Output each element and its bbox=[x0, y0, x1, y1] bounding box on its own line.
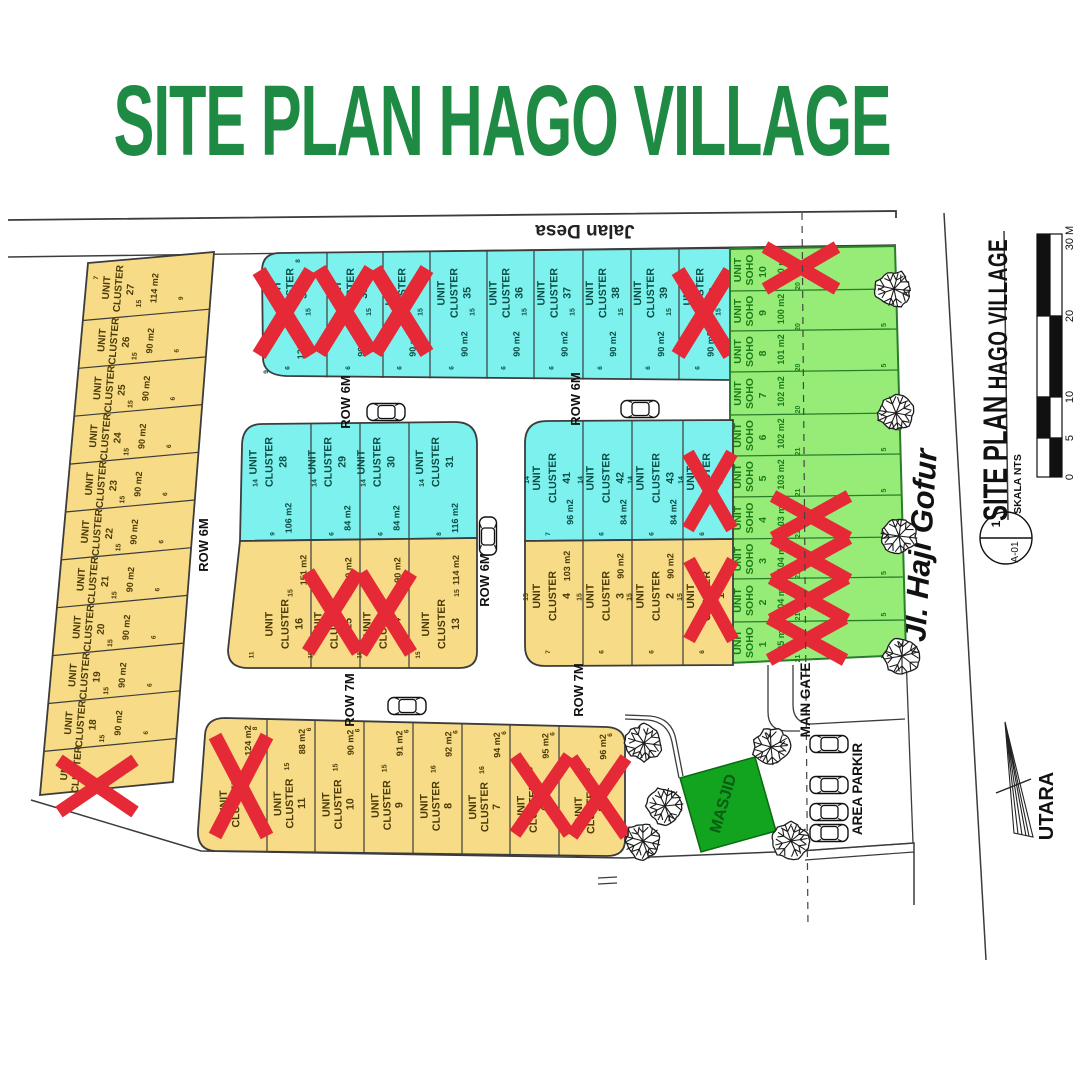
svg-text:15: 15 bbox=[136, 299, 144, 307]
svg-text:UNIT: UNIT bbox=[531, 583, 543, 608]
svg-text:UNIT: UNIT bbox=[67, 663, 80, 687]
svg-text:8: 8 bbox=[757, 350, 769, 356]
svg-text:15: 15 bbox=[366, 308, 373, 316]
svg-text:13: 13 bbox=[450, 618, 462, 630]
svg-text:UNIT: UNIT bbox=[80, 520, 93, 544]
svg-text:10: 10 bbox=[1064, 391, 1076, 403]
svg-text:20: 20 bbox=[96, 623, 108, 635]
svg-text:84 m2: 84 m2 bbox=[342, 505, 352, 531]
svg-text:CLUSTER: CLUSTER bbox=[547, 453, 559, 503]
svg-text:5: 5 bbox=[881, 363, 888, 367]
svg-text:15: 15 bbox=[99, 734, 107, 742]
svg-text:UNIT: UNIT bbox=[92, 376, 105, 400]
svg-text:15: 15 bbox=[131, 352, 139, 360]
svg-text:6: 6 bbox=[549, 732, 556, 736]
svg-text:6: 6 bbox=[500, 366, 507, 370]
svg-text:90 m2: 90 m2 bbox=[656, 331, 666, 357]
svg-text:6: 6 bbox=[345, 366, 352, 370]
svg-text:UNIT: UNIT bbox=[84, 472, 97, 496]
svg-text:UNIT: UNIT bbox=[685, 583, 697, 608]
svg-text:14: 14 bbox=[252, 479, 259, 487]
svg-text:UNIT: UNIT bbox=[584, 280, 596, 305]
svg-text:103 m2: 103 m2 bbox=[562, 551, 572, 582]
svg-text:100 m2: 100 m2 bbox=[776, 294, 786, 325]
svg-text:SOHO: SOHO bbox=[744, 420, 756, 451]
svg-text:84 m2: 84 m2 bbox=[391, 505, 401, 531]
svg-text:CLUSTER: CLUSTER bbox=[500, 268, 512, 318]
svg-text:23: 23 bbox=[108, 479, 120, 491]
svg-text:22: 22 bbox=[104, 527, 116, 539]
svg-text:88 m2: 88 m2 bbox=[297, 729, 307, 755]
svg-text:90 m2: 90 m2 bbox=[345, 730, 355, 756]
svg-text:39: 39 bbox=[658, 287, 670, 299]
svg-text:SOHO: SOHO bbox=[744, 544, 756, 575]
svg-text:6: 6 bbox=[645, 366, 652, 370]
svg-text:UNIT: UNIT bbox=[63, 711, 76, 735]
svg-text:UNIT: UNIT bbox=[732, 298, 744, 323]
svg-text:UNIT: UNIT bbox=[632, 280, 644, 305]
svg-text:15: 15 bbox=[381, 764, 388, 772]
svg-text:Jalan Desa: Jalan Desa bbox=[535, 220, 635, 241]
svg-text:UNIT: UNIT bbox=[732, 339, 744, 364]
svg-text:90 m2: 90 m2 bbox=[459, 331, 469, 357]
svg-text:15: 15 bbox=[287, 589, 294, 597]
svg-text:21: 21 bbox=[795, 613, 802, 621]
svg-text:15: 15 bbox=[123, 448, 131, 456]
svg-text:9: 9 bbox=[263, 370, 270, 374]
svg-text:7: 7 bbox=[757, 392, 769, 398]
svg-text:15: 15 bbox=[119, 495, 127, 503]
svg-text:A-01: A-01 bbox=[1010, 541, 1021, 563]
svg-text:CLUSTER: CLUSTER bbox=[448, 268, 460, 318]
svg-text:7: 7 bbox=[545, 532, 552, 536]
svg-text:90 m2: 90 m2 bbox=[608, 331, 618, 357]
svg-text:6: 6 bbox=[306, 727, 313, 731]
svg-text:106 m2: 106 m2 bbox=[283, 503, 293, 534]
svg-text:90 m2: 90 m2 bbox=[120, 614, 132, 640]
svg-text:UNIT: UNIT bbox=[369, 793, 381, 818]
svg-text:6: 6 bbox=[403, 729, 410, 733]
svg-text:15: 15 bbox=[127, 400, 135, 408]
svg-text:CLUSTER: CLUSTER bbox=[547, 571, 559, 621]
svg-text:3: 3 bbox=[614, 593, 626, 599]
svg-text:90 m2: 90 m2 bbox=[144, 328, 156, 354]
svg-text:6: 6 bbox=[648, 650, 655, 654]
svg-text:5: 5 bbox=[881, 488, 888, 492]
svg-text:21: 21 bbox=[795, 489, 802, 497]
svg-text:6: 6 bbox=[598, 650, 605, 654]
svg-text:6: 6 bbox=[501, 731, 508, 735]
svg-text:CLUSTER: CLUSTER bbox=[263, 437, 275, 487]
svg-text:15: 15 bbox=[305, 308, 312, 316]
svg-text:CLUSTER: CLUSTER bbox=[430, 781, 443, 832]
svg-text:38: 38 bbox=[610, 287, 622, 299]
svg-text:15: 15 bbox=[523, 593, 530, 601]
svg-text:UNIT: UNIT bbox=[584, 583, 596, 608]
svg-text:14: 14 bbox=[360, 479, 367, 487]
svg-text:6: 6 bbox=[757, 434, 769, 440]
svg-text:CLUSTER: CLUSTER bbox=[650, 571, 662, 621]
svg-text:UNIT: UNIT bbox=[467, 794, 479, 819]
svg-text:6: 6 bbox=[699, 532, 706, 536]
svg-text:SOHO: SOHO bbox=[744, 627, 756, 658]
svg-text:6: 6 bbox=[548, 366, 555, 370]
svg-text:6: 6 bbox=[597, 366, 604, 370]
svg-text:UNIT: UNIT bbox=[71, 615, 84, 639]
svg-text:43: 43 bbox=[664, 472, 676, 484]
svg-text:15: 15 bbox=[417, 308, 424, 316]
svg-text:AREA PARKIR: AREA PARKIR bbox=[850, 743, 865, 836]
svg-text:6: 6 bbox=[396, 366, 403, 370]
svg-text:CLUSTER: CLUSTER bbox=[650, 453, 662, 503]
svg-text:CLUSTER: CLUSTER bbox=[322, 437, 334, 487]
svg-text:SITE PLAN HAGO VILLAGE: SITE PLAN HAGO VILLAGE bbox=[114, 64, 891, 176]
svg-text:116 m2: 116 m2 bbox=[450, 503, 460, 533]
svg-text:7: 7 bbox=[545, 650, 552, 654]
svg-text:84 m2: 84 m2 bbox=[618, 499, 628, 525]
svg-text:20: 20 bbox=[795, 406, 802, 414]
svg-text:UNIT: UNIT bbox=[732, 257, 744, 282]
svg-text:14: 14 bbox=[577, 476, 584, 484]
svg-text:CLUSTER: CLUSTER bbox=[284, 778, 297, 829]
svg-text:UNIT: UNIT bbox=[306, 449, 318, 474]
svg-text:15: 15 bbox=[284, 762, 291, 770]
svg-text:CLUSTER: CLUSTER bbox=[600, 571, 612, 621]
svg-text:SOHO: SOHO bbox=[744, 585, 756, 616]
svg-text:SOHO: SOHO bbox=[744, 336, 756, 367]
svg-text:5: 5 bbox=[881, 571, 888, 575]
svg-text:14: 14 bbox=[524, 476, 531, 484]
svg-text:6: 6 bbox=[354, 728, 361, 732]
svg-text:8: 8 bbox=[252, 726, 259, 730]
svg-text:UNIT: UNIT bbox=[101, 276, 114, 300]
svg-text:11: 11 bbox=[296, 797, 308, 809]
svg-text:15: 15 bbox=[111, 591, 119, 599]
svg-text:5: 5 bbox=[881, 447, 888, 451]
svg-text:15: 15 bbox=[469, 308, 476, 316]
svg-text:16: 16 bbox=[479, 766, 486, 774]
svg-text:18: 18 bbox=[87, 718, 99, 730]
svg-text:UTARA: UTARA bbox=[1036, 772, 1058, 841]
svg-text:9: 9 bbox=[269, 532, 276, 536]
svg-text:5: 5 bbox=[757, 475, 769, 481]
svg-text:11: 11 bbox=[248, 651, 255, 658]
svg-text:114 m2: 114 m2 bbox=[451, 555, 461, 585]
svg-text:MAIN GATE: MAIN GATE bbox=[798, 663, 813, 738]
svg-text:96 m2: 96 m2 bbox=[598, 734, 608, 760]
svg-text:91 m2: 91 m2 bbox=[394, 731, 404, 757]
svg-text:6: 6 bbox=[328, 532, 335, 536]
svg-text:8: 8 bbox=[295, 259, 302, 263]
svg-text:UNIT: UNIT bbox=[247, 449, 259, 474]
svg-text:21: 21 bbox=[100, 575, 112, 587]
svg-text:101 m2: 101 m2 bbox=[776, 334, 786, 365]
svg-text:6: 6 bbox=[452, 730, 459, 734]
svg-text:35: 35 bbox=[461, 287, 473, 299]
svg-text:ROW 6M: ROW 6M bbox=[477, 553, 492, 606]
svg-text:ROW 6M: ROW 6M bbox=[196, 518, 211, 571]
svg-text:10: 10 bbox=[757, 266, 769, 278]
svg-text:28: 28 bbox=[277, 456, 289, 468]
svg-text:UNIT: UNIT bbox=[414, 449, 426, 474]
svg-text:103 m2: 103 m2 bbox=[776, 459, 786, 490]
svg-text:0: 0 bbox=[1064, 474, 1076, 480]
svg-text:20: 20 bbox=[795, 282, 802, 290]
svg-text:CLUSTER: CLUSTER bbox=[479, 782, 492, 833]
svg-text:90 m2: 90 m2 bbox=[112, 710, 124, 736]
svg-text:UNIT: UNIT bbox=[320, 792, 332, 817]
svg-text:1: 1 bbox=[757, 641, 769, 647]
svg-text:84 m2: 84 m2 bbox=[668, 499, 678, 525]
svg-text:41: 41 bbox=[561, 472, 573, 484]
svg-text:16: 16 bbox=[293, 618, 305, 630]
svg-text:2: 2 bbox=[757, 599, 769, 605]
svg-text:90 m2: 90 m2 bbox=[124, 566, 136, 592]
svg-text:SKALA NTS: SKALA NTS bbox=[1012, 454, 1024, 514]
svg-text:UNIT: UNIT bbox=[420, 611, 432, 636]
svg-text:102 m2: 102 m2 bbox=[776, 418, 786, 449]
svg-text:15: 15 bbox=[618, 308, 625, 316]
svg-text:6: 6 bbox=[598, 532, 605, 536]
svg-text:5: 5 bbox=[881, 612, 888, 616]
svg-text:25: 25 bbox=[116, 384, 128, 396]
svg-text:ROW 7M: ROW 7M bbox=[571, 663, 586, 716]
svg-text:15: 15 bbox=[666, 308, 673, 316]
svg-text:15: 15 bbox=[521, 308, 528, 316]
svg-text:6: 6 bbox=[699, 650, 706, 654]
svg-text:42: 42 bbox=[614, 472, 626, 484]
svg-text:ROW 6M: ROW 6M bbox=[568, 372, 583, 425]
svg-text:UNIT: UNIT bbox=[535, 280, 547, 305]
svg-text:16: 16 bbox=[430, 765, 437, 773]
svg-text:15: 15 bbox=[454, 589, 461, 597]
svg-text:CLUSTER: CLUSTER bbox=[279, 599, 291, 649]
svg-text:90 m2: 90 m2 bbox=[559, 331, 569, 357]
svg-text:2: 2 bbox=[664, 593, 676, 599]
svg-text:4: 4 bbox=[561, 593, 573, 599]
svg-text:UNIT: UNIT bbox=[531, 465, 543, 490]
svg-text:9: 9 bbox=[757, 310, 769, 316]
svg-text:15: 15 bbox=[103, 687, 111, 695]
svg-text:15: 15 bbox=[677, 593, 684, 601]
svg-text:UNIT: UNIT bbox=[418, 793, 430, 818]
svg-text:90 m2: 90 m2 bbox=[140, 375, 152, 401]
svg-text:15: 15 bbox=[576, 593, 583, 601]
svg-text:30 M: 30 M bbox=[1064, 226, 1076, 250]
svg-text:7: 7 bbox=[491, 804, 503, 810]
svg-text:20: 20 bbox=[795, 364, 802, 372]
svg-text:SOHO: SOHO bbox=[744, 461, 756, 492]
svg-text:UNIT: UNIT bbox=[96, 328, 109, 352]
svg-text:19: 19 bbox=[91, 671, 103, 683]
svg-text:UNIT: UNIT bbox=[487, 280, 499, 305]
svg-text:8: 8 bbox=[436, 532, 443, 536]
svg-text:14: 14 bbox=[627, 476, 634, 484]
svg-text:5: 5 bbox=[881, 323, 888, 327]
svg-text:SITE PLAN HAGO VILLAGE: SITE PLAN HAGO VILLAGE bbox=[977, 239, 1015, 521]
svg-text:6: 6 bbox=[607, 733, 614, 737]
svg-text:102 m2: 102 m2 bbox=[776, 376, 786, 407]
svg-text:21: 21 bbox=[795, 655, 802, 663]
svg-text:UNIT: UNIT bbox=[732, 381, 744, 406]
svg-text:6: 6 bbox=[377, 532, 384, 536]
svg-text:CLUSTER: CLUSTER bbox=[430, 437, 442, 487]
svg-text:SOHO: SOHO bbox=[744, 378, 756, 409]
svg-text:UNIT: UNIT bbox=[263, 611, 275, 636]
svg-text:6: 6 bbox=[448, 366, 455, 370]
svg-text:14: 14 bbox=[678, 476, 685, 484]
svg-text:90 m2: 90 m2 bbox=[132, 471, 144, 497]
svg-text:SOHO: SOHO bbox=[744, 255, 756, 286]
svg-text:95 m2: 95 m2 bbox=[540, 733, 550, 759]
svg-text:15: 15 bbox=[332, 763, 339, 771]
svg-text:15: 15 bbox=[715, 308, 722, 316]
svg-text:5: 5 bbox=[1064, 435, 1076, 441]
svg-text:26: 26 bbox=[121, 336, 133, 348]
svg-text:ROW 7M: ROW 7M bbox=[342, 673, 357, 726]
svg-text:UNIT: UNIT bbox=[272, 791, 284, 816]
svg-text:30: 30 bbox=[385, 456, 397, 468]
svg-text:14: 14 bbox=[311, 479, 318, 487]
svg-text:SOHO: SOHO bbox=[744, 296, 756, 327]
svg-text:6: 6 bbox=[284, 366, 291, 370]
svg-text:1: 1 bbox=[989, 520, 1003, 527]
svg-text:14: 14 bbox=[419, 479, 426, 487]
svg-text:29: 29 bbox=[336, 456, 348, 468]
svg-text:UNIT: UNIT bbox=[75, 567, 88, 591]
svg-text:9: 9 bbox=[393, 802, 405, 808]
svg-text:90 m2: 90 m2 bbox=[665, 553, 675, 579]
svg-text:CLUSTER: CLUSTER bbox=[645, 268, 657, 318]
svg-text:UNIT: UNIT bbox=[584, 465, 596, 490]
svg-text:92 m2: 92 m2 bbox=[443, 731, 453, 757]
svg-text:CLUSTER: CLUSTER bbox=[371, 437, 383, 487]
svg-text:27: 27 bbox=[125, 283, 137, 295]
svg-text:CLUSTER: CLUSTER bbox=[597, 268, 609, 318]
svg-text:SOHO: SOHO bbox=[744, 503, 756, 534]
svg-text:21: 21 bbox=[795, 448, 802, 456]
svg-text:90 m2: 90 m2 bbox=[615, 553, 625, 579]
svg-text:CLUSTER: CLUSTER bbox=[600, 453, 612, 503]
svg-text:4: 4 bbox=[757, 517, 769, 523]
svg-text:UNIT: UNIT bbox=[435, 280, 447, 305]
svg-text:15: 15 bbox=[115, 543, 123, 551]
svg-text:3: 3 bbox=[757, 558, 769, 564]
svg-text:24: 24 bbox=[112, 431, 124, 443]
svg-text:8: 8 bbox=[442, 803, 454, 809]
svg-text:15: 15 bbox=[569, 308, 576, 316]
svg-text:6: 6 bbox=[648, 532, 655, 536]
svg-text:CLUSTER: CLUSTER bbox=[436, 599, 448, 649]
svg-text:90 m2: 90 m2 bbox=[128, 519, 140, 545]
svg-text:UNIT: UNIT bbox=[634, 465, 646, 490]
svg-text:36: 36 bbox=[513, 287, 525, 299]
svg-text:90 m2: 90 m2 bbox=[116, 662, 128, 688]
svg-text:6: 6 bbox=[694, 366, 701, 370]
svg-text:CLUSTER: CLUSTER bbox=[381, 780, 394, 831]
svg-text:96 m2: 96 m2 bbox=[565, 499, 575, 525]
svg-text:CLUSTER: CLUSTER bbox=[548, 268, 560, 318]
svg-text:15: 15 bbox=[415, 651, 422, 659]
svg-text:15: 15 bbox=[107, 639, 115, 647]
svg-text:UNIT: UNIT bbox=[88, 424, 101, 448]
svg-text:10: 10 bbox=[344, 798, 356, 810]
svg-text:UNIT: UNIT bbox=[634, 583, 646, 608]
svg-text:94 m2: 94 m2 bbox=[492, 732, 502, 758]
svg-text:90 m2: 90 m2 bbox=[511, 331, 521, 357]
svg-text:15: 15 bbox=[626, 593, 633, 601]
svg-text:CLUSTER: CLUSTER bbox=[332, 779, 345, 830]
svg-text:31: 31 bbox=[444, 456, 456, 468]
svg-text:20: 20 bbox=[1064, 310, 1076, 322]
svg-text:UNIT: UNIT bbox=[355, 449, 367, 474]
svg-text:37: 37 bbox=[561, 287, 573, 299]
svg-text:90 m2: 90 m2 bbox=[136, 423, 148, 449]
svg-text:ROW 6M: ROW 6M bbox=[338, 375, 353, 428]
